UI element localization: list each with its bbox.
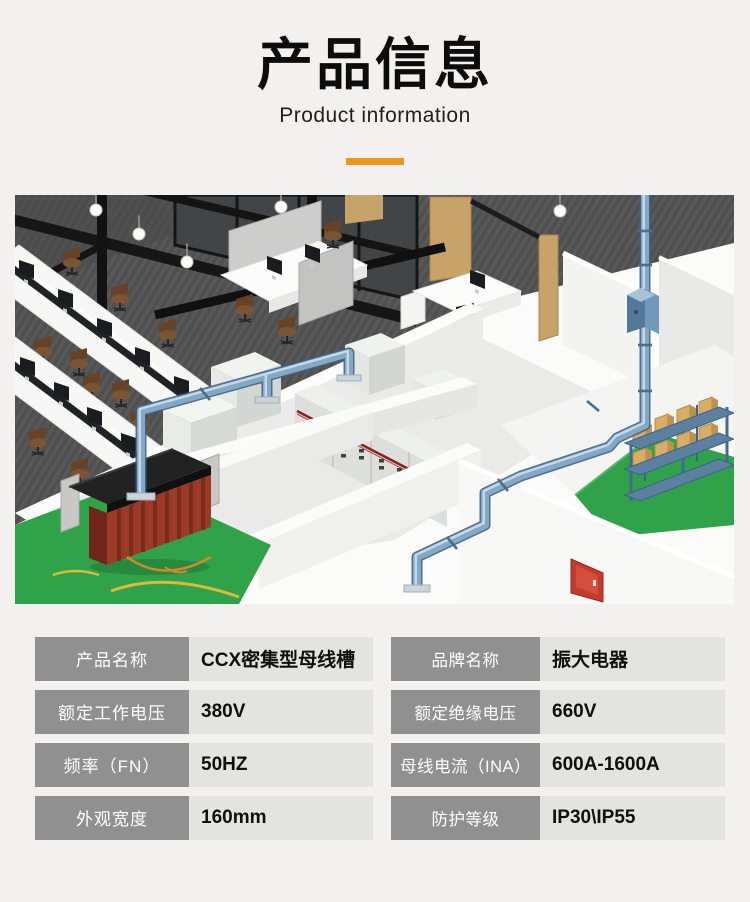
spec-table: 产品名称 CCX密集型母线槽 额定工作电压 380V 频率（FN） 50HZ 外… <box>35 637 725 840</box>
spec-value: 50HZ <box>189 743 373 787</box>
spec-value: 160mm <box>189 796 373 840</box>
spec-row: 母线电流（INA） 600A-1600A <box>391 743 725 787</box>
spec-value: 660V <box>540 690 725 734</box>
spec-label: 母线电流（INA） <box>391 743 540 787</box>
busway-installation-illustration <box>15 195 734 604</box>
busway-junction-box <box>627 288 659 334</box>
page-title: 产品信息 <box>0 34 750 97</box>
page-header: 产品信息 Product information <box>0 0 750 165</box>
spec-value: 380V <box>189 690 373 734</box>
page-subtitle: Product information <box>0 104 750 128</box>
spec-label: 频率（FN） <box>35 743 189 787</box>
spec-label: 防护等级 <box>391 796 540 840</box>
spec-row: 额定绝缘电压 660V <box>391 690 725 734</box>
spec-label: 额定绝缘电压 <box>391 690 540 734</box>
spec-row: 外观宽度 160mm <box>35 796 373 840</box>
spec-label: 产品名称 <box>35 637 189 681</box>
spec-value: 600A-1600A <box>540 743 725 787</box>
spec-row: 产品名称 CCX密集型母线槽 <box>35 637 373 681</box>
spec-row: 品牌名称 振大电器 <box>391 637 725 681</box>
spec-column-right: 品牌名称 振大电器 额定绝缘电压 660V 母线电流（INA） 600A-160… <box>391 637 725 840</box>
spec-value: CCX密集型母线槽 <box>189 637 373 681</box>
spec-row: 频率（FN） 50HZ <box>35 743 373 787</box>
spec-value: 振大电器 <box>540 637 725 681</box>
spec-column-left: 产品名称 CCX密集型母线槽 额定工作电压 380V 频率（FN） 50HZ 外… <box>35 637 373 840</box>
spec-row: 额定工作电压 380V <box>35 690 373 734</box>
accent-divider <box>346 158 404 165</box>
spec-value: IP30\IP55 <box>540 796 725 840</box>
spec-label: 品牌名称 <box>391 637 540 681</box>
spec-row: 防护等级 IP30\IP55 <box>391 796 725 840</box>
spec-label: 额定工作电压 <box>35 690 189 734</box>
spec-label: 外观宽度 <box>35 796 189 840</box>
